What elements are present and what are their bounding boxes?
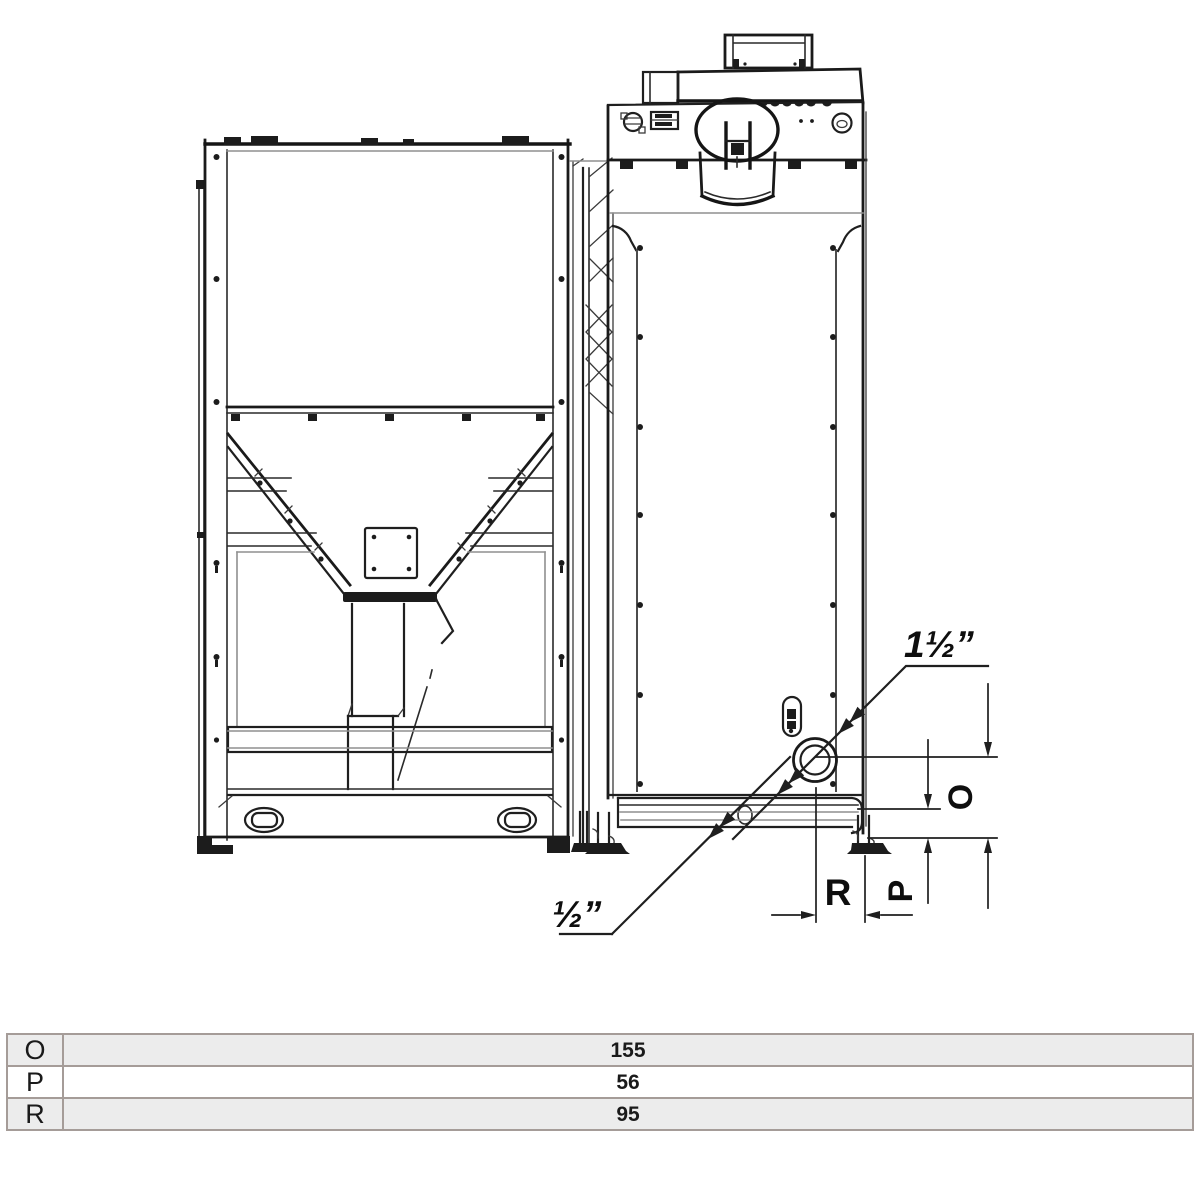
flue-duct <box>725 35 812 68</box>
auger-connector <box>570 158 613 852</box>
access-plate <box>365 528 417 578</box>
dimension-p: P <box>858 740 940 903</box>
table-row: O 155 <box>8 1035 1192 1067</box>
side-rails <box>228 478 552 727</box>
page: 1½” ½” O P R O 155 <box>0 0 1200 1200</box>
funnel-outlet <box>343 592 437 602</box>
dim-value-cell: 155 <box>64 1035 1192 1065</box>
hopper <box>196 136 573 854</box>
chute <box>348 604 432 789</box>
top-fitting-right <box>833 114 852 133</box>
table-row: R 95 <box>8 1099 1192 1129</box>
handle-slots <box>245 808 536 832</box>
annotations: 1½” ½” O P R <box>552 624 997 935</box>
drain-fitting <box>783 697 801 736</box>
divider-tabs <box>231 414 545 421</box>
dim-value-cell: 95 <box>64 1099 1192 1129</box>
funnel <box>228 434 552 643</box>
top-housing <box>608 69 863 107</box>
base-plinth <box>618 798 862 833</box>
table-row: P 56 <box>8 1067 1192 1099</box>
label-large-fitting: 1½” <box>904 624 974 665</box>
dim-p-label: P <box>882 880 920 903</box>
top-switch <box>651 112 678 129</box>
hopper-feet <box>197 836 570 854</box>
boiler-body <box>608 103 866 833</box>
dim-o-label: O <box>942 784 980 810</box>
dim-label-cell: R <box>8 1099 64 1129</box>
dim-value-cell: 56 <box>64 1067 1192 1097</box>
panel-bolts <box>637 245 836 787</box>
label-small-fitting: ½” <box>552 894 602 935</box>
technical-drawing: 1½” ½” O P R <box>0 0 1200 1010</box>
dim-r-label: R <box>825 872 852 913</box>
leader-large-fitting <box>733 666 988 839</box>
dim-label-cell: P <box>8 1067 64 1097</box>
dim-label-cell: O <box>8 1035 64 1065</box>
flue-collar <box>696 99 778 205</box>
top-fitting-left <box>621 113 645 133</box>
hopper-bolts <box>214 154 565 743</box>
boiler <box>585 35 892 854</box>
dimensions-table: O 155 P 56 R 95 <box>6 1033 1194 1131</box>
